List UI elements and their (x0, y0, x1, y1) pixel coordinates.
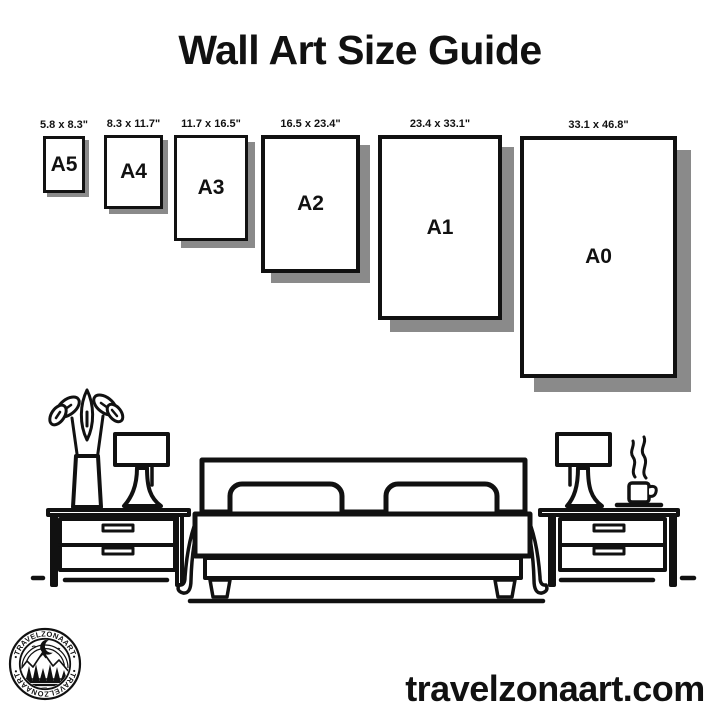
bed-base (205, 558, 521, 578)
frame-a3-paper: A3 (174, 135, 248, 241)
table-lamp-left-icon (115, 434, 168, 506)
frame-a1-paper: A1 (378, 135, 502, 320)
brand-logo-badge: •TRAVELZONAART• •TRAVELZONAART• (5, 621, 85, 705)
frame-a4: 8.3 x 11.7" A4 (104, 135, 163, 209)
frame-a1: 23.4 x 33.1" A1 (378, 135, 502, 320)
frame-a3: 11.7 x 16.5" A3 (174, 135, 248, 241)
page-title: Wall Art Size Guide (0, 27, 720, 74)
frame-a4-dimensions: 8.3 x 11.7" (107, 118, 161, 130)
coffee-cup-icon (617, 437, 661, 505)
frame-a2-paper: A2 (261, 135, 360, 273)
frame-a0-dimensions: 33.1 x 46.8" (568, 119, 628, 131)
table-lamp-right-icon (557, 434, 610, 506)
frame-a2-dimensions: 16.5 x 23.4" (280, 118, 340, 130)
nightstand-left-icon (48, 510, 189, 585)
frame-a5: 5.8 x 8.3" A5 (43, 136, 85, 193)
frame-a5-paper: A5 (43, 136, 85, 193)
double-bed-icon (178, 460, 547, 597)
mattress (195, 514, 530, 556)
website-url: travelzonaart.com (390, 668, 720, 710)
frame-a0: 33.1 x 46.8" A0 (520, 136, 677, 378)
frame-a2: 16.5 x 23.4" A2 (261, 135, 360, 273)
size-guide-poster: Wall Art Size Guide 5.8 x 8.3" A5 8.3 x … (0, 0, 720, 720)
nightstand-right-icon (540, 510, 678, 585)
frame-a0-paper: A0 (520, 136, 677, 378)
frame-a3-dimensions: 11.7 x 16.5" (181, 118, 241, 130)
floor-line-icon (33, 578, 694, 601)
bedroom-scene-illustration (25, 382, 715, 607)
frame-a1-dimensions: 23.4 x 33.1" (410, 118, 470, 130)
frame-a5-dimensions: 5.8 x 8.3" (40, 119, 88, 131)
frame-a4-paper: A4 (104, 135, 163, 209)
